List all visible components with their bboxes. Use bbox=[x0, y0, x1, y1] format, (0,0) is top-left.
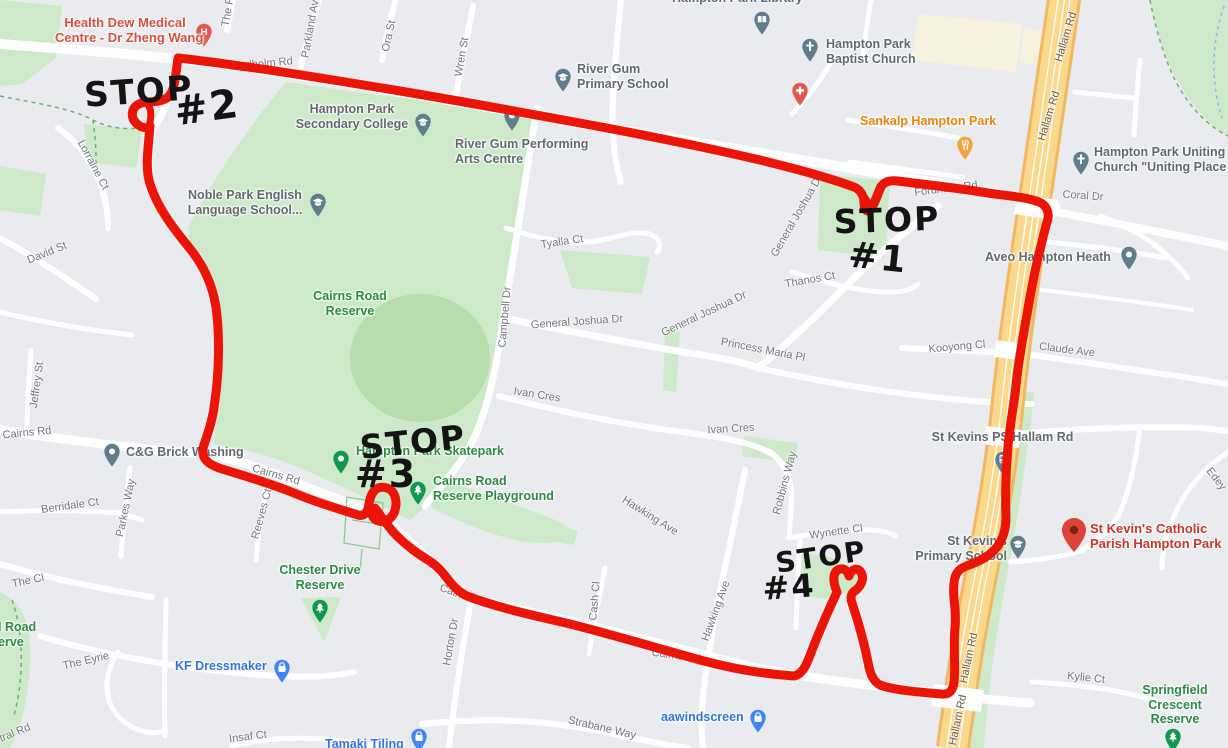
tamaki-tiling-label[interactable]: Tamaki Tiling bbox=[325, 737, 404, 748]
cairns-road-reserve-label-line: Cairns Road bbox=[305, 289, 395, 304]
handwritten-annotation: #1 bbox=[846, 235, 909, 282]
hampton-park-baptist-church-label-line: Hampton Park bbox=[826, 37, 916, 52]
st-kevins-primary-school-label-line: Primary School bbox=[903, 549, 1007, 564]
st-kevins-catholic-parish-label-line: St Kevin's Catholic bbox=[1090, 521, 1222, 536]
st-kevins-ps-hallam-rd-label-line: St Kevins PS/Hallam Rd bbox=[925, 430, 1080, 445]
springfield-crescent-reserve-label-line: Springfield bbox=[1135, 683, 1215, 698]
cairns-road-reserve-playground-label[interactable]: Cairns RoadReserve Playground bbox=[433, 474, 554, 503]
road-reserve-partial-label-line: l Road bbox=[0, 620, 36, 635]
hampton-park-baptist-church-label[interactable]: Hampton ParkBaptist Church bbox=[826, 37, 916, 66]
st-kevins-ps-hallam-rd-label[interactable]: St Kevins PS/Hallam Rd bbox=[925, 430, 1080, 445]
health-dew-medical-label[interactable]: Health Dew MedicalCentre - Dr Zheng Wang bbox=[55, 15, 195, 45]
chester-drive-reserve-label-line: Chester Drive bbox=[272, 563, 368, 578]
road-reserve-partial-label-line: erve bbox=[0, 635, 36, 650]
hampton-park-uniting-church-label[interactable]: Hampton Park UnitingChurch "Uniting Plac… bbox=[1094, 145, 1226, 174]
aawindscreen-label-line: aawindscreen bbox=[661, 710, 744, 725]
aawindscreen-label[interactable]: aawindscreen bbox=[661, 710, 744, 725]
river-gum-primary-school-pin cap-icon[interactable] bbox=[555, 68, 572, 93]
springfield-crescent-reserve-label[interactable]: SpringfieldCrescentReserve bbox=[1135, 683, 1215, 727]
noble-park-english-language-school-label-line: Language School... bbox=[182, 203, 308, 218]
sankalp-hampton-park-label-line: Sankalp Hampton Park bbox=[860, 114, 996, 129]
st-kevins-ps-hallam-rd-pin bus-icon[interactable] bbox=[995, 451, 1012, 476]
health-dew-medical-label-line: Centre - Dr Zheng Wang bbox=[55, 30, 195, 45]
chester-drive-reserve-pin tree-icon[interactable] bbox=[312, 599, 329, 624]
handwritten-annotation: #3 bbox=[355, 452, 417, 496]
hampton-park-uniting-church-label-line: Church "Uniting Place bbox=[1094, 160, 1226, 175]
st-kevins-primary-school-label[interactable]: St Kevin'sPrimary School bbox=[903, 534, 1007, 563]
road-reserve-partial-label[interactable]: l Roaderve bbox=[0, 620, 36, 649]
springfield-crescent-reserve-pin tree-icon[interactable] bbox=[1165, 728, 1182, 748]
cg-brick-washing-pin dot-icon[interactable] bbox=[104, 443, 121, 468]
hampton-park-uniting-church-label-line: Hampton Park Uniting bbox=[1094, 145, 1226, 160]
hampton-park-baptist-church-label-line: Baptist Church bbox=[826, 52, 916, 67]
st-kevins-catholic-parish-label[interactable]: St Kevin's CatholicParish Hampton Park bbox=[1090, 521, 1222, 551]
handwritten-annotation: #4 bbox=[761, 566, 817, 608]
hampton-park-secondary-college-pin cap-icon[interactable] bbox=[415, 113, 432, 138]
hampton-park-secondary-college-label[interactable]: Hampton ParkSecondary College bbox=[290, 102, 414, 131]
kf-dressmaker-label[interactable]: KF Dressmaker bbox=[175, 659, 267, 674]
chester-drive-reserve-label-line: Reserve bbox=[272, 578, 368, 593]
hampton-park-library-label-line: Hampton Park Library bbox=[672, 0, 803, 6]
aveo-hampton-heath-label-line: Aveo Hampton Heath bbox=[985, 250, 1111, 265]
springfield-crescent-reserve-label-line: Reserve bbox=[1135, 712, 1215, 727]
river-gum-primary-school-label-line: River Gum bbox=[577, 62, 669, 77]
st-kevins-catholic-parish-label-line: Parish Hampton Park bbox=[1090, 536, 1222, 551]
aveo-hampton-heath-pin dot-icon[interactable] bbox=[1121, 246, 1138, 271]
map-canvas[interactable]: Fordholm RdFordholm RdThe PParkland AveO… bbox=[0, 0, 1228, 748]
tamaki-tiling-pin bag-icon[interactable] bbox=[411, 728, 428, 748]
handwritten-annotation: #2 bbox=[171, 81, 242, 136]
noble-park-english-language-school-label-line: Noble Park English bbox=[182, 188, 308, 203]
hampton-park-library-pin book-icon[interactable] bbox=[754, 11, 771, 36]
st-kevins-catholic-parish-pin red-pin-icon[interactable] bbox=[1061, 517, 1087, 553]
hampton-park-secondary-college-label-line: Hampton Park bbox=[290, 102, 414, 117]
kf-dressmaker-pin bag-icon[interactable] bbox=[274, 659, 291, 684]
hampton-park-library-label[interactable]: Hampton Park Library bbox=[672, 0, 803, 6]
cairns-road-reserve-label-line: Reserve bbox=[305, 304, 395, 319]
river-gum-performing-arts-label-line: River Gum Performing bbox=[455, 137, 588, 152]
sankalp-hampton-park-label[interactable]: Sankalp Hampton Park bbox=[860, 114, 996, 129]
cairns-road-reserve-playground-label-line: Reserve Playground bbox=[433, 489, 554, 504]
hampton-park-skatepark-pin dot-icon[interactable] bbox=[333, 450, 350, 475]
river-gum-primary-school-label[interactable]: River GumPrimary School bbox=[577, 62, 669, 91]
cairns-road-reserve-playground-label-line: Cairns Road bbox=[433, 474, 554, 489]
cairns-road-reserve-label[interactable]: Cairns RoadReserve bbox=[305, 289, 395, 318]
tamaki-tiling-label-line: Tamaki Tiling bbox=[325, 737, 404, 748]
chester-drive-reserve-label[interactable]: Chester DriveReserve bbox=[272, 563, 368, 592]
hampton-park-baptist-church-pin cross-icon[interactable] bbox=[802, 38, 819, 63]
kf-dressmaker-label-line: KF Dressmaker bbox=[175, 659, 267, 674]
medical-marker-pin plus-icon[interactable] bbox=[792, 82, 809, 107]
aveo-hampton-heath-label[interactable]: Aveo Hampton Heath bbox=[985, 250, 1111, 265]
st-kevins-primary-school-pin cap-icon[interactable] bbox=[1010, 535, 1027, 560]
handwritten-annotation: STOP bbox=[833, 199, 941, 242]
cg-brick-washing-label-line: C&G Brick Washing bbox=[126, 445, 244, 460]
aawindscreen-pin bag-icon[interactable] bbox=[750, 709, 767, 734]
sankalp-hampton-park-pin fork-icon[interactable] bbox=[957, 136, 974, 161]
noble-park-english-language-school-label[interactable]: Noble Park EnglishLanguage School... bbox=[182, 188, 308, 217]
springfield-crescent-reserve-label-line: Crescent bbox=[1135, 698, 1215, 713]
health-dew-medical-label-line: Health Dew Medical bbox=[55, 15, 195, 30]
cg-brick-washing-label[interactable]: C&G Brick Washing bbox=[126, 445, 244, 460]
river-gum-performing-arts-pin dot-icon[interactable] bbox=[504, 107, 521, 132]
river-gum-performing-arts-label-line: Arts Centre bbox=[455, 152, 588, 167]
noble-park-english-language-school-pin cap-icon[interactable] bbox=[310, 193, 327, 218]
river-gum-primary-school-label-line: Primary School bbox=[577, 77, 669, 92]
hampton-park-uniting-church-pin cross-icon[interactable] bbox=[1073, 151, 1090, 176]
river-gum-performing-arts-label[interactable]: River Gum PerformingArts Centre bbox=[455, 137, 588, 166]
hampton-park-secondary-college-label-line: Secondary College bbox=[290, 117, 414, 132]
street-label: Ivan Cres bbox=[707, 422, 755, 436]
st-kevins-primary-school-label-line: St Kevin's bbox=[903, 534, 1007, 549]
